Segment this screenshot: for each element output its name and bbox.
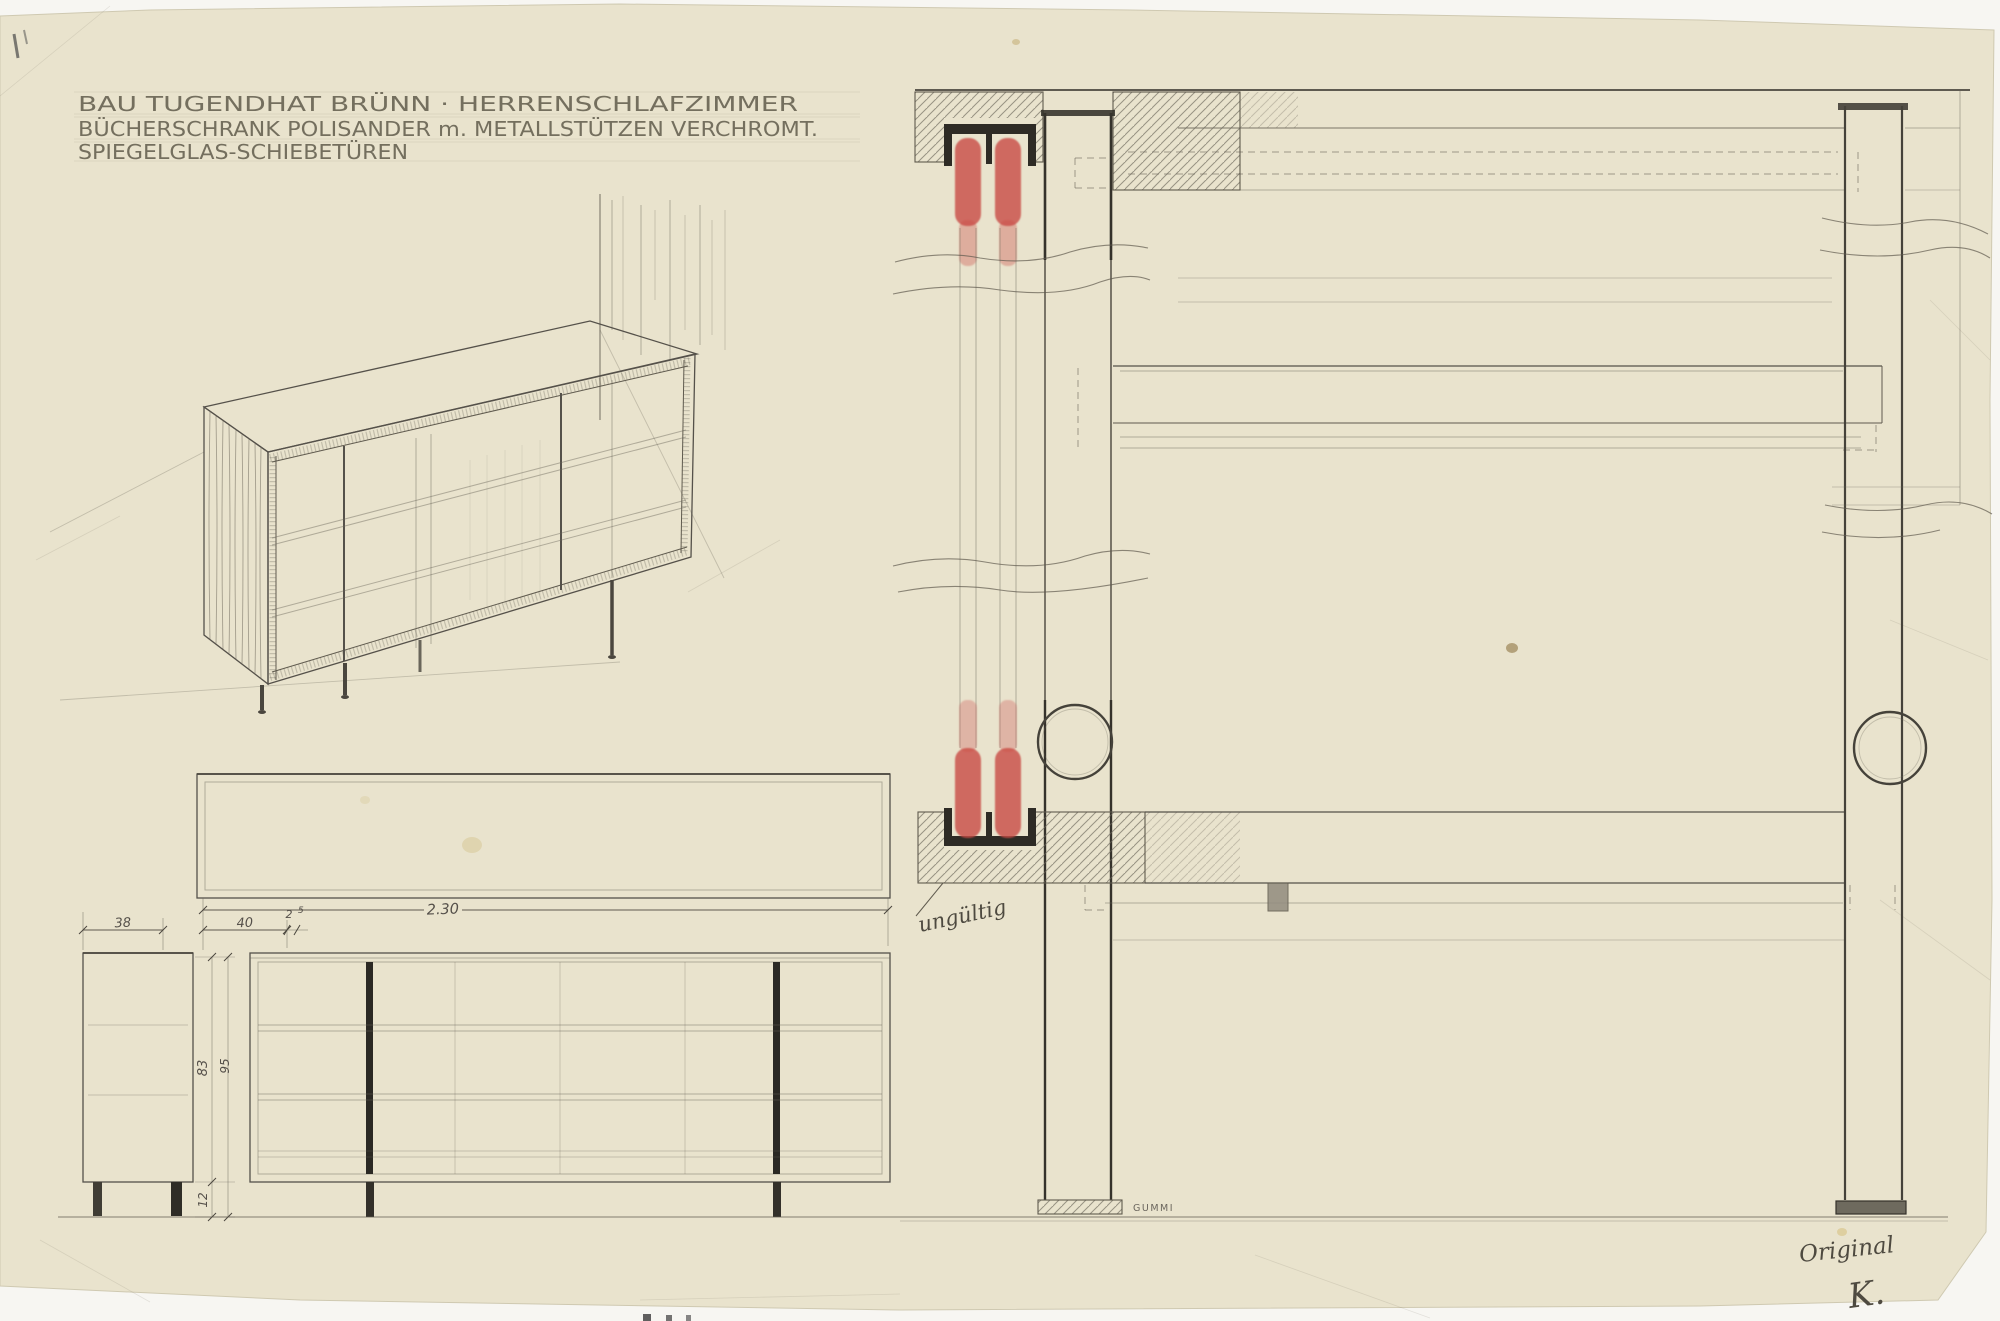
title-line-2: BÜCHERSCHRANK POLISANDER m. METALLSTÜTZE… bbox=[78, 117, 818, 141]
scanned-drawing-sheet: BAU TUGENDHAT BRÜNN · HERRENSCHLAFZIMMER… bbox=[0, 0, 2000, 1321]
signature: K. bbox=[1845, 1272, 1887, 1317]
dim-leg-height: 12 bbox=[196, 1192, 210, 1207]
title-line-1: BAU TUGENDHAT BRÜNN · HERRENSCHLAFZIMMER bbox=[78, 92, 798, 116]
post-foot-right bbox=[1836, 1201, 1906, 1214]
connector-block bbox=[1268, 883, 1288, 911]
door-stile-left bbox=[366, 962, 373, 1174]
post-foot-left bbox=[1038, 1200, 1122, 1214]
dim-gap-sup: 5 bbox=[298, 906, 304, 916]
title-line-3: SPIEGELGLAS-SCHIEBETÜREN bbox=[78, 140, 408, 164]
drawing-canvas: BAU TUGENDHAT BRÜNN · HERRENSCHLAFZIMMER… bbox=[0, 0, 2000, 1321]
rubber-label: GUMMI bbox=[1133, 1203, 1174, 1214]
dim-overall-length: 2.30 bbox=[426, 901, 459, 918]
dim-gap-main: 2 bbox=[286, 908, 293, 921]
dim-depth: 38 bbox=[114, 916, 131, 932]
dim-overall-height: 95 bbox=[218, 1058, 232, 1073]
dim-bay-width: 40 bbox=[236, 916, 253, 932]
door-stile-right bbox=[773, 962, 780, 1174]
dim-body-height: 83 bbox=[196, 1060, 211, 1077]
